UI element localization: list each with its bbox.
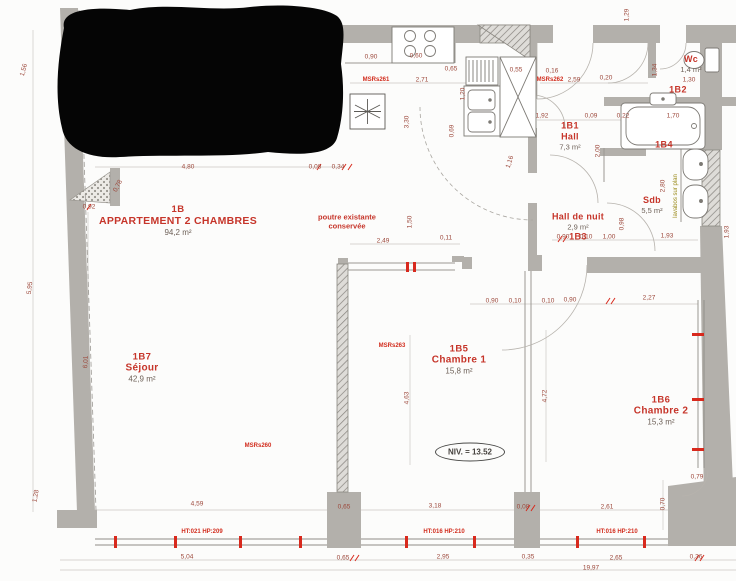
- dimension-label: 2,95: [437, 554, 450, 561]
- beam-note: poutre existante conservée: [318, 213, 376, 232]
- reference-code: HT:021 HP:209: [181, 529, 222, 535]
- room-label-line: 94,2 m²: [99, 228, 257, 238]
- dimension-label: 1,20: [460, 88, 467, 101]
- room-label-line: APPARTEMENT 2 CHAMBRES: [99, 216, 257, 229]
- room-label: Wc1,4 m²: [680, 54, 701, 74]
- dimension-label: 0,69: [449, 125, 456, 138]
- dimension-label: 1,29: [624, 9, 631, 22]
- room-label-line: 15,3 m²: [634, 418, 688, 428]
- dimension-label: 0,90: [564, 297, 577, 304]
- room-label-line: 1B: [99, 204, 257, 215]
- dimension-label: 0,90: [486, 298, 499, 305]
- dimension-label: 0,16: [546, 68, 559, 75]
- room-label-line: 15,8 m²: [432, 367, 486, 377]
- dimension-label: 0,65: [338, 504, 351, 511]
- dimension-label: 0,90: [365, 54, 378, 61]
- dimension-label: 0,08: [517, 504, 530, 511]
- room-label: 1B4: [655, 140, 673, 151]
- dimension-label: 0,35: [522, 554, 535, 561]
- reference-code: MSRs261: [363, 77, 390, 83]
- dimension-label: 4,72: [542, 390, 549, 403]
- dimension-label: 0,79: [691, 474, 704, 481]
- dimension-label: 3,18: [429, 503, 442, 510]
- dimension-label: 6,01: [82, 355, 90, 368]
- floor-plan: poutre existante conservée NIV. = 13.52 …: [0, 0, 736, 581]
- washbasin-note: lavabos sur plan: [673, 174, 679, 218]
- dimension-label: 0,65: [337, 555, 350, 562]
- dimension-label: 0,70: [660, 498, 667, 511]
- dimension-label: 2,00: [595, 145, 602, 158]
- room-label: Sdb5,5 m²: [641, 195, 662, 215]
- room-label-line: 2,9 m²: [552, 223, 604, 232]
- dimension-label: 0,10: [542, 298, 555, 305]
- reference-code: HT:016 HP:210: [596, 529, 637, 535]
- room-label-line: Chambre 1: [432, 355, 486, 367]
- room-label-line: 1B4: [655, 140, 673, 151]
- dimension-label: 4,80: [182, 164, 195, 171]
- dimension-label: 0,08: [309, 164, 322, 171]
- dimension-label: 2,59: [568, 77, 581, 84]
- room-label-line: Hall: [559, 132, 580, 143]
- dimension-label: 1,70: [667, 113, 680, 120]
- room-label-line: Sdb: [641, 195, 662, 206]
- dimension-label: 1,56: [19, 63, 29, 77]
- reference-code: MSRs260: [245, 443, 272, 449]
- dimension-label: 1,16: [505, 155, 516, 169]
- dimension-label: 0,98: [619, 218, 626, 231]
- room-label-line: 7,3 m²: [559, 142, 580, 151]
- room-label: 1B1Hall7,3 m²: [559, 121, 580, 152]
- dimension-label: 1,28: [31, 489, 40, 503]
- room-label-line: Séjour: [126, 363, 159, 375]
- dimension-label: 2,49: [377, 238, 390, 245]
- dimension-label: 0,34: [332, 164, 345, 171]
- dimension-label: 0,11: [440, 235, 452, 242]
- room-label-line: 1B2: [669, 85, 687, 96]
- room-label-line: Wc: [680, 54, 701, 65]
- dimension-label: 0,78: [112, 179, 124, 193]
- dimension-label: 5,95: [26, 281, 34, 294]
- dimension-label: 1,30: [683, 77, 696, 84]
- room-label-line: Chambre 2: [634, 406, 688, 418]
- dimension-label: 1,34: [652, 64, 659, 77]
- dimension-label: 0,10: [580, 234, 593, 241]
- dimension-label: 0,22: [617, 113, 630, 120]
- dimension-label: 1,93: [724, 226, 731, 239]
- reference-code: MSRs262: [537, 77, 564, 83]
- level-badge: NIV. = 13.52: [435, 443, 505, 462]
- room-label: 1B6Chambre 215,3 m²: [634, 395, 688, 428]
- dimension-label: 4,59: [191, 501, 204, 508]
- dimension-label: 0,36: [690, 554, 703, 561]
- dimension-label: 0,10: [509, 298, 522, 305]
- dimension-label: 2,71: [416, 77, 429, 84]
- dimension-label: 2,80: [660, 180, 667, 193]
- room-label-line: 1B5: [432, 344, 486, 355]
- reference-code: MSRs263: [379, 343, 406, 349]
- room-label: 1B7Séjour42,9 m²: [126, 352, 159, 385]
- dimension-label: 2,65: [610, 555, 623, 562]
- room-label-line: 1B1: [559, 121, 580, 132]
- room-label-line: 1B6: [634, 395, 688, 406]
- beam-note-line1: poutre existante: [318, 213, 376, 222]
- dimension-label: 1,50: [407, 216, 414, 229]
- dimension-label: 2,61: [601, 504, 614, 511]
- room-label: 1B5Chambre 115,8 m²: [432, 344, 486, 377]
- dimension-label: 0,60: [410, 53, 423, 60]
- beam-note-line2: conservée: [318, 222, 376, 231]
- room-label: 1B2: [669, 85, 687, 96]
- dimension-label: 0,20: [600, 75, 613, 82]
- dimension-label: 2,27: [643, 295, 656, 302]
- dimension-label: 3,30: [404, 116, 411, 129]
- dimension-label: 0,90: [557, 234, 570, 241]
- room-label-line: 1B7: [126, 352, 159, 363]
- dimension-label: 19,97: [583, 565, 599, 572]
- dimension-label: 0,92: [83, 204, 96, 211]
- dimension-label: 0,09: [585, 113, 598, 120]
- dimension-label: 5,04: [181, 554, 194, 561]
- dimension-label: 0,55: [510, 67, 523, 74]
- room-label-line: 42,9 m²: [126, 375, 159, 385]
- dimension-label: 4,63: [404, 392, 411, 405]
- dimension-label: 1,93: [661, 233, 674, 240]
- room-label-line: Hall de nuit: [552, 212, 604, 223]
- room-label-line: 5,5 m²: [641, 206, 662, 215]
- labels-layer: poutre existante conservée NIV. = 13.52 …: [0, 0, 736, 581]
- reference-code: HT:016 HP:210: [423, 529, 464, 535]
- dimension-label: 1,00: [603, 234, 616, 241]
- dimension-label: 0,65: [445, 66, 458, 73]
- room-label-line: 1,4 m²: [680, 65, 701, 74]
- dimension-label: 1,92: [536, 113, 549, 120]
- room-label: 1BAPPARTEMENT 2 CHAMBRES94,2 m²: [99, 204, 257, 238]
